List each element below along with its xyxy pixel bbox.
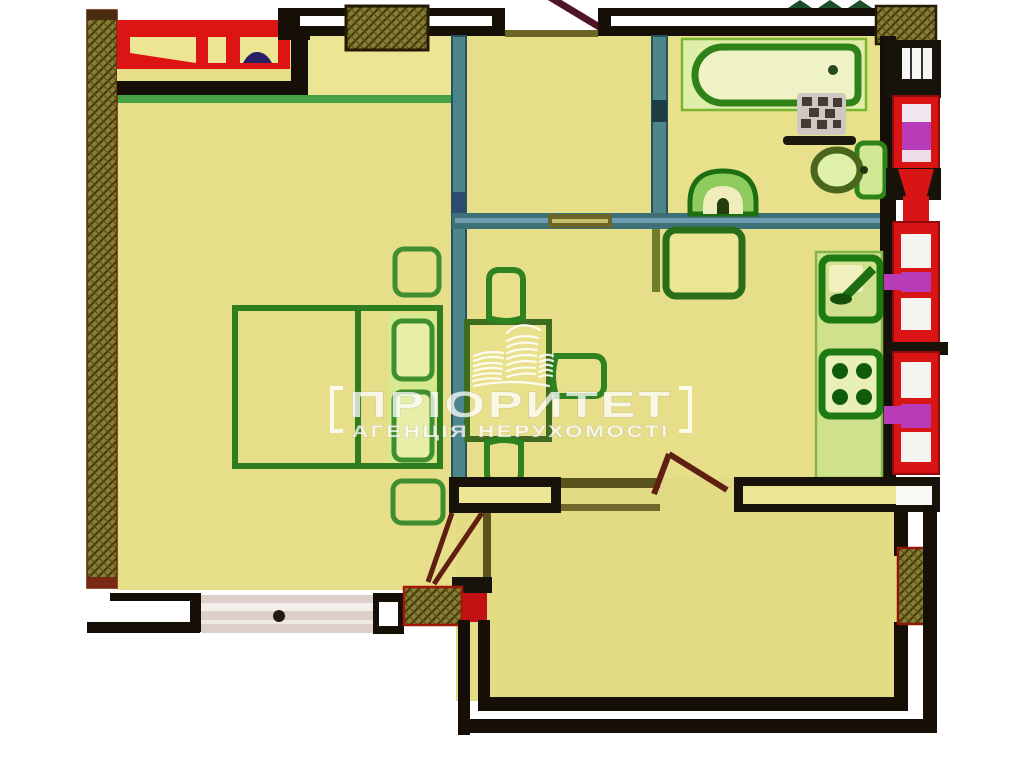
svg-text:АГЕНЦІЯ НЕРУХОМОСТІ: АГЕНЦІЯ НЕРУХОМОСТІ [352,422,670,441]
svg-text:ПРІОРИТЕТ: ПРІОРИТЕТ [349,384,673,425]
